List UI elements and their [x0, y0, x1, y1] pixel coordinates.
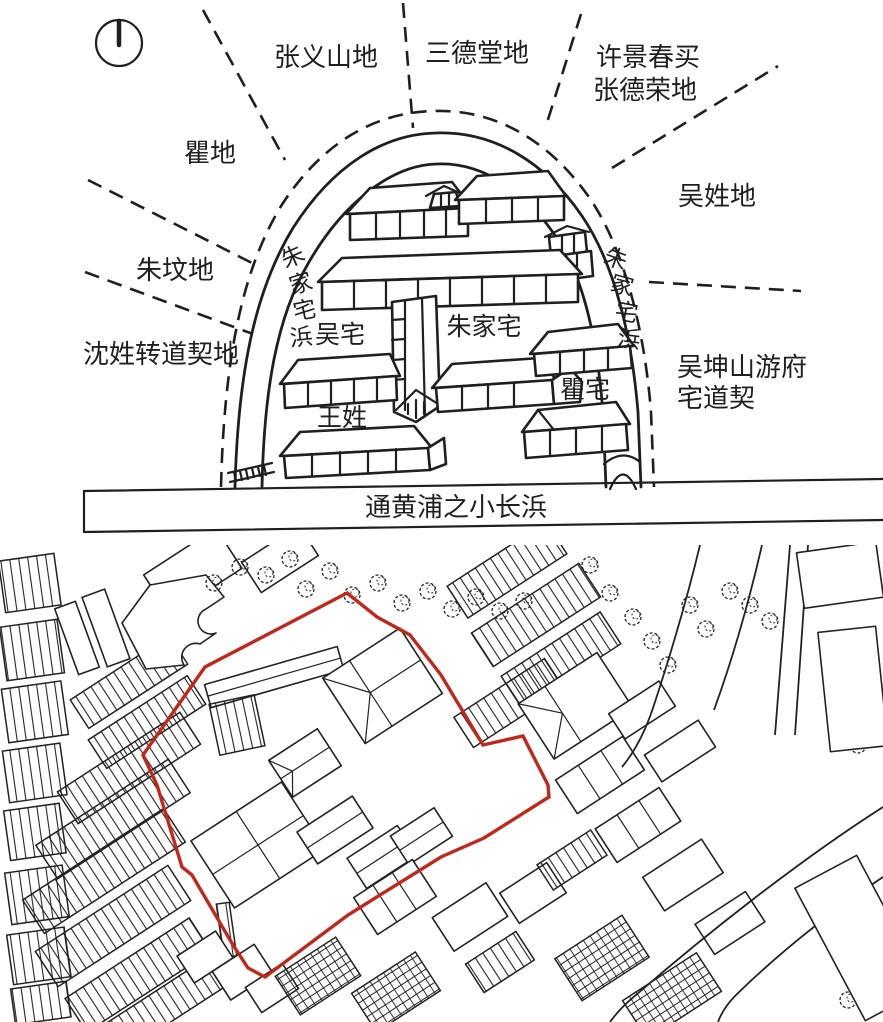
boundary-dash-line — [88, 180, 252, 263]
edge-block — [818, 626, 883, 751]
sketch-map-panel: 张义山地 三德堂地 许景春买 张德荣地 瞿地 朱坟地 沈姓转道契地 吴姓地 吴坤… — [0, 0, 883, 545]
label-qudi: 瞿地 — [184, 139, 236, 169]
mid-block — [432, 883, 507, 951]
grid-block — [352, 952, 441, 1022]
house-long-row — [318, 250, 582, 310]
label-xujingchun-2: 张德荣地 — [593, 76, 697, 106]
label-wukunshan-1: 吴坤山游府 — [677, 353, 807, 383]
label-sandetangdi: 三德堂地 — [425, 39, 529, 69]
edge-block — [796, 545, 883, 608]
top-edge-building — [242, 545, 319, 593]
parcel-strip-block — [209, 695, 265, 755]
boundary-dash-line — [403, 3, 413, 128]
svg-text:家: 家 — [286, 269, 316, 301]
label-shenxing: 沈姓转道契地 — [83, 340, 239, 370]
boundary-dash-line — [649, 282, 801, 291]
compass-icon — [96, 20, 142, 66]
mid-block — [466, 931, 535, 992]
svg-text:浜: 浜 — [288, 324, 314, 352]
mid-block — [537, 830, 607, 890]
label-wuxingdi: 吴姓地 — [678, 182, 756, 212]
label-wangxing: 王姓 — [317, 403, 367, 432]
grid-block — [275, 937, 360, 1015]
label-quzhai: 瞿宅 — [560, 375, 610, 404]
grid-block — [555, 915, 649, 1001]
mid-block — [695, 892, 765, 955]
label-river: 通黄浦之小长浜 — [365, 493, 547, 523]
road-edge — [775, 545, 790, 735]
label-wuzhai: 吴宅 — [315, 320, 365, 349]
house-row-west — [280, 354, 400, 408]
plot-strip-block — [2, 743, 67, 803]
label-zhufendi: 朱坟地 — [136, 256, 214, 286]
svg-text:宅: 宅 — [613, 298, 641, 328]
plot-strip-block — [1, 681, 68, 743]
house-south-west — [280, 426, 446, 478]
plot-strip-block — [0, 619, 64, 681]
figure-root: 张义山地 三德堂地 许景春买 张德荣地 瞿地 朱坟地 沈姓转道契地 吴姓地 吴坤… — [0, 0, 883, 1022]
mid-block — [643, 839, 723, 911]
boundary-dash-line — [203, 10, 285, 160]
svg-text:浜: 浜 — [616, 326, 642, 355]
label-zhangyishandi: 张义山地 — [274, 43, 378, 73]
edge-block — [795, 855, 883, 1020]
east-row-house — [644, 720, 715, 782]
road-edge — [714, 545, 762, 710]
plot-strip-block — [0, 553, 61, 612]
hall-with-apse — [122, 575, 224, 669]
mid-block — [595, 788, 681, 863]
house-upper-right — [455, 171, 566, 224]
boundary-dash-line — [546, 14, 581, 126]
cadastral-map-panel — [0, 545, 883, 1022]
parcel-main-hall — [323, 628, 443, 744]
label-wukunshan-2: 宅道契 — [677, 384, 755, 414]
house-east-lower — [522, 402, 630, 458]
label-xujingchun-1: 许景春买 — [596, 43, 700, 73]
house-upper-left — [346, 182, 472, 240]
plot-strip-block — [11, 981, 71, 1022]
label-zhujiazhai: 朱家宅 — [446, 312, 521, 341]
hall-tall-central — [392, 296, 440, 422]
